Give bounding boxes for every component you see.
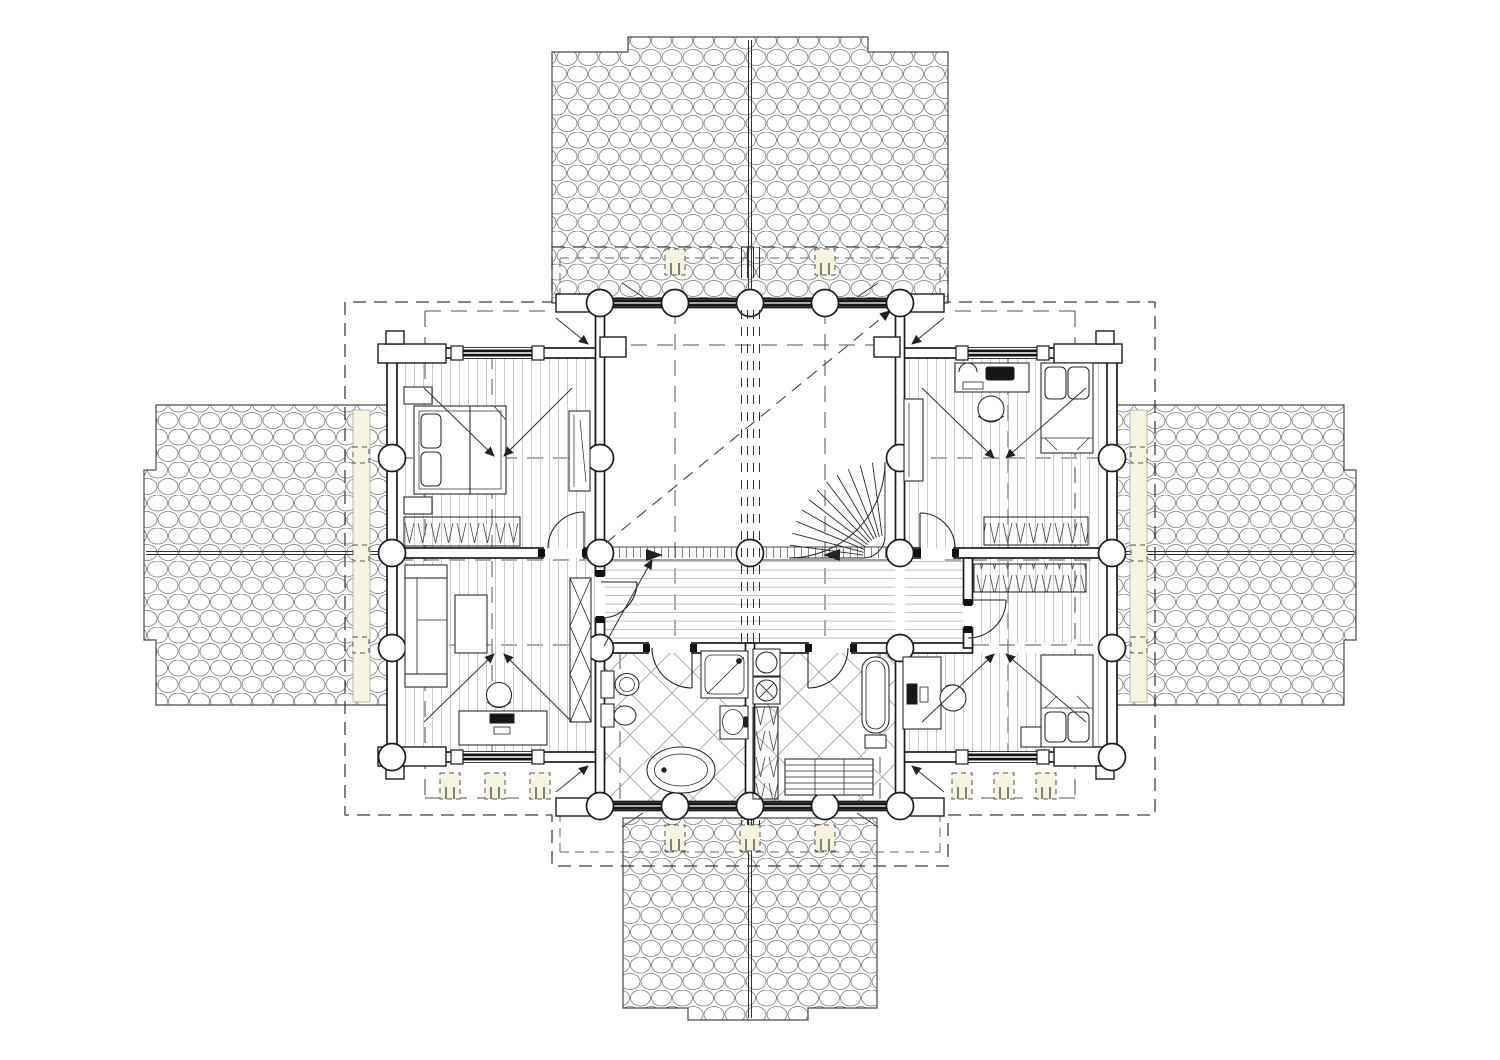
toilet (601, 671, 639, 698)
desk-ne (955, 363, 1029, 392)
wardrobe-ne (984, 517, 1088, 545)
floor-vestibule (905, 558, 963, 643)
sofa (405, 565, 447, 687)
nightstand (404, 387, 432, 404)
window-bedroom-nw (451, 346, 544, 360)
desk-sw (459, 711, 547, 745)
side-table-se (1021, 727, 1041, 747)
roof-north (552, 37, 948, 303)
wardrobe-se (974, 564, 1086, 592)
wall-vestibule-a (964, 558, 973, 604)
single-bed-ne (1041, 363, 1093, 453)
bidet (601, 704, 636, 727)
shower-cabin (701, 651, 748, 698)
office-chair-ne (978, 396, 1004, 422)
window-bedroom-ne (956, 346, 1049, 360)
office-chair-se (940, 685, 966, 711)
drawing-sheet (0, 0, 1500, 1060)
wall-mid-east-b (954, 548, 1113, 558)
washbasin (720, 706, 748, 739)
window-study-sw (451, 750, 544, 764)
double-bed (414, 406, 506, 494)
floor-corridor (605, 558, 895, 643)
tall-cabinet-nw (569, 411, 590, 491)
tall-cabinet-ne (904, 399, 923, 481)
desk-se (903, 657, 941, 729)
sauna-heater (753, 707, 778, 799)
floor-plan-canvas (0, 0, 1500, 1060)
wardrobe-nw (404, 517, 520, 546)
nightstand (404, 497, 432, 514)
wall-mid-west-a (388, 548, 544, 558)
window-bedroom-se (956, 750, 1049, 764)
bathtub (647, 747, 715, 793)
office-chair-sw (487, 683, 512, 708)
coffee-table (455, 595, 487, 653)
sauna-bench (785, 759, 873, 795)
washing-machine (753, 649, 780, 676)
single-bed-se (1041, 655, 1093, 747)
washer-dryer (753, 677, 780, 704)
lattice-cabinet-sw (570, 578, 591, 722)
